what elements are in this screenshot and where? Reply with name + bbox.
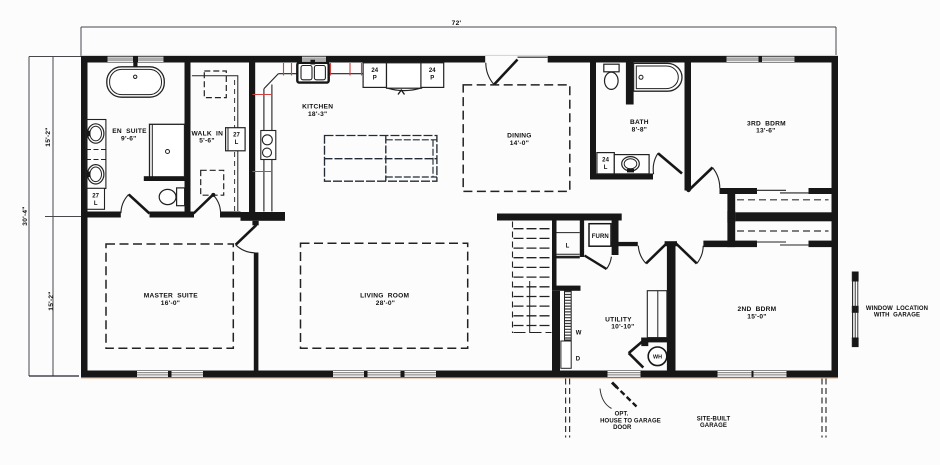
svg-text:P: P	[430, 76, 434, 82]
svg-text:WINDOW LOCATION: WINDOW LOCATION	[866, 306, 928, 312]
svg-text:L: L	[566, 244, 570, 250]
svg-text:EN SUITE: EN SUITE	[112, 128, 147, 135]
svg-text:SITE-BUILT: SITE-BUILT	[697, 417, 731, 423]
svg-text:27: 27	[92, 194, 99, 200]
svg-text:72': 72'	[452, 20, 462, 27]
svg-text:10'-10": 10'-10"	[611, 324, 634, 331]
svg-text:LIVING ROOM: LIVING ROOM	[360, 293, 409, 300]
svg-text:15'-2": 15'-2"	[48, 291, 55, 310]
svg-text:WITH GARAGE: WITH GARAGE	[874, 312, 920, 318]
svg-text:W: W	[576, 331, 582, 337]
svg-text:MASTER SUITE: MASTER SUITE	[144, 293, 199, 300]
svg-text:18'-3": 18'-3"	[308, 111, 327, 118]
svg-text:OPT.: OPT.	[615, 412, 629, 418]
svg-text:14'-0": 14'-0"	[510, 140, 529, 147]
svg-text:8'-8": 8'-8"	[632, 127, 647, 134]
svg-text:L: L	[235, 140, 239, 146]
svg-text:15'-0": 15'-0"	[747, 314, 766, 321]
svg-text:15'-2": 15'-2"	[45, 127, 52, 146]
svg-text:HOUSE TO GARAGE: HOUSE TO GARAGE	[600, 418, 661, 424]
svg-text:DINING: DINING	[507, 133, 532, 140]
svg-text:DOOR: DOOR	[613, 425, 632, 431]
svg-text:24: 24	[429, 68, 436, 74]
svg-text:24: 24	[602, 158, 609, 164]
svg-text:BATH: BATH	[630, 119, 649, 126]
svg-text:28'-0": 28'-0"	[376, 300, 395, 307]
svg-text:13'-6": 13'-6"	[756, 128, 775, 135]
svg-text:3RD BDRM: 3RD BDRM	[747, 121, 786, 128]
svg-text:27: 27	[233, 133, 240, 139]
svg-text:UTILITY: UTILITY	[605, 317, 632, 324]
svg-text:WALK IN: WALK IN	[191, 131, 223, 138]
svg-text:2ND BDRM: 2ND BDRM	[738, 306, 777, 313]
svg-text:9'-6": 9'-6"	[121, 136, 136, 143]
svg-text:5'-6": 5'-6"	[199, 138, 214, 145]
svg-text:30'-4": 30'-4"	[22, 206, 29, 225]
svg-text:16'-0": 16'-0"	[161, 300, 180, 307]
svg-text:WH: WH	[653, 355, 662, 361]
svg-text:P: P	[373, 76, 377, 82]
svg-text:24: 24	[371, 68, 378, 74]
svg-text:L: L	[604, 165, 608, 171]
svg-text:D: D	[576, 357, 581, 363]
svg-text:L: L	[94, 201, 98, 207]
svg-text:FURN: FURN	[592, 234, 609, 240]
svg-text:KITCHEN: KITCHEN	[302, 104, 333, 111]
svg-text:GARAGE: GARAGE	[700, 423, 727, 429]
